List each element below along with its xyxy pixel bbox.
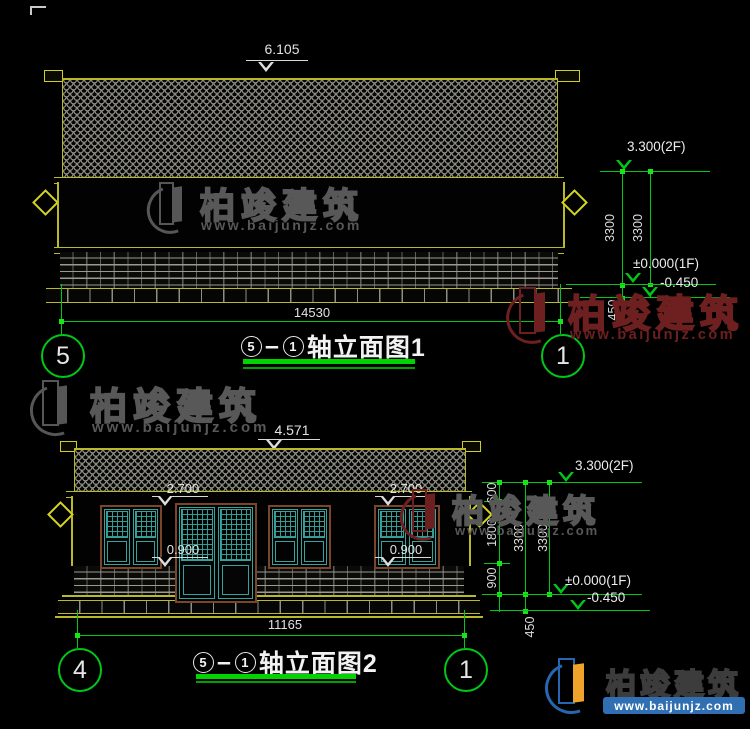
dim-tick <box>620 169 625 174</box>
roof-cap-right-v1 <box>555 70 580 82</box>
watermark-site: www.baijunjz.com <box>201 217 362 233</box>
dimension-line-v1 <box>61 321 561 322</box>
company-logo-icon <box>545 656 599 712</box>
glass-pane <box>107 541 127 562</box>
logo-building-fill <box>573 663 584 703</box>
ridge-level-v1: 6.105 <box>252 41 312 57</box>
watermark-logo-icon <box>506 285 560 343</box>
dim-tick <box>75 633 80 638</box>
width-dim-v2: 11165 <box>255 617 315 632</box>
title-axis-a: 5 <box>241 336 262 357</box>
watermark-site: www.baijunjz.com <box>455 523 599 538</box>
glass-pane <box>304 541 324 562</box>
ridge-level-line-v1 <box>246 60 308 61</box>
window-sash <box>301 509 327 565</box>
cad-canvas: 6.105 柏竣建筑 www.baijunjz.com 14530 5 1 5–… <box>0 0 750 729</box>
extension-line <box>464 610 465 648</box>
eave-bracket-left-v1 <box>32 189 59 216</box>
dim-tick <box>59 319 64 324</box>
level-triangle <box>158 497 172 506</box>
lattice-panel <box>106 511 128 538</box>
dimension-line-v2 <box>77 635 466 636</box>
grid-bubble-1b: 1 <box>444 648 488 692</box>
lattice-panel <box>220 509 252 561</box>
window-2 <box>268 505 331 569</box>
level-line <box>600 171 710 172</box>
eave-bracket-left-v2 <box>47 501 74 528</box>
lattice-panel <box>303 511 325 538</box>
window-1 <box>100 505 162 569</box>
grid-bubble-4: 4 <box>58 648 102 692</box>
title-axis-a: 5 <box>193 652 214 673</box>
dim-tick <box>547 480 552 485</box>
title-underline <box>243 359 415 364</box>
level-minus-v2: -0.450 <box>587 590 625 605</box>
title-axis-b: 1 <box>235 652 256 673</box>
title-dash: – <box>265 332 280 361</box>
extension-line <box>560 284 561 334</box>
watermark-site: www.baijunjz.com <box>570 327 735 343</box>
lattice-panel <box>135 511 157 538</box>
plinth-v1 <box>46 288 572 303</box>
watermark-logo-icon <box>30 378 82 434</box>
roof-cap-left-v1 <box>44 70 63 82</box>
level-2f-v2: 3.300(2F) <box>575 458 634 473</box>
level-triangle <box>570 600 586 610</box>
vdim-450-v2: 450 <box>523 607 537 647</box>
level-1f-v2: ±0.000(1F) <box>565 573 631 588</box>
door-leaf <box>218 507 254 599</box>
vdim-line <box>622 171 623 298</box>
brick-band-v2 <box>74 566 464 595</box>
extension-line <box>61 284 62 334</box>
ridge-level-v2: 4.571 <box>262 422 322 438</box>
title-dash: – <box>217 648 232 677</box>
title-underline <box>196 674 356 679</box>
level-triangle <box>381 558 395 567</box>
watermark-site: www.baijunjz.com <box>92 419 269 436</box>
vdim-3300-b: 3300 <box>631 208 645 248</box>
level-triangle <box>625 273 641 283</box>
plinth-v2 <box>58 600 480 614</box>
width-dim-v1: 14530 <box>280 305 344 320</box>
level-line <box>482 482 642 483</box>
window-sash <box>272 509 298 565</box>
extension-line <box>77 610 78 648</box>
vdim-line <box>650 171 651 298</box>
dim-tick <box>523 480 528 485</box>
dim-tick <box>462 633 467 638</box>
level-line <box>490 610 650 611</box>
vdim-900: 900 <box>485 558 499 598</box>
glass-pane <box>275 541 295 562</box>
level-1f-v1: ±0.000(1F) <box>633 256 699 271</box>
glass-pane <box>136 541 156 562</box>
plinth-line <box>62 595 476 597</box>
roof-tiles-v1 <box>62 78 558 179</box>
level-2f-v1: 3.300(2F) <box>627 139 686 154</box>
window-sash <box>104 509 130 565</box>
frame-mark <box>30 6 46 15</box>
vdim-3300-a: 3300 <box>603 208 617 248</box>
grid-bubble-5: 5 <box>41 334 85 378</box>
door-panel <box>183 565 211 595</box>
company-logo-site: www.baijunjz.com <box>603 697 745 714</box>
title-underline-thin <box>196 681 356 683</box>
level-triangle <box>558 472 574 482</box>
eave-bracket-right-v1 <box>561 189 588 216</box>
dim-tick <box>648 169 653 174</box>
sill-level-1: 0.900 <box>157 542 209 557</box>
lattice-panel <box>274 511 296 538</box>
sill-level-2: 0.900 <box>380 542 432 557</box>
ridge-level-triangle-v1 <box>258 62 274 72</box>
brick-band-v1 <box>60 252 558 288</box>
title-axis-b: 1 <box>283 336 304 357</box>
level-triangle <box>381 497 395 506</box>
watermark-logo-icon <box>400 487 448 539</box>
watermark-logo-icon <box>147 180 195 232</box>
door-panel <box>222 565 250 595</box>
title-underline-thin <box>243 367 415 369</box>
level-triangle <box>158 558 172 567</box>
head-level-1: 2.700 <box>157 481 209 496</box>
